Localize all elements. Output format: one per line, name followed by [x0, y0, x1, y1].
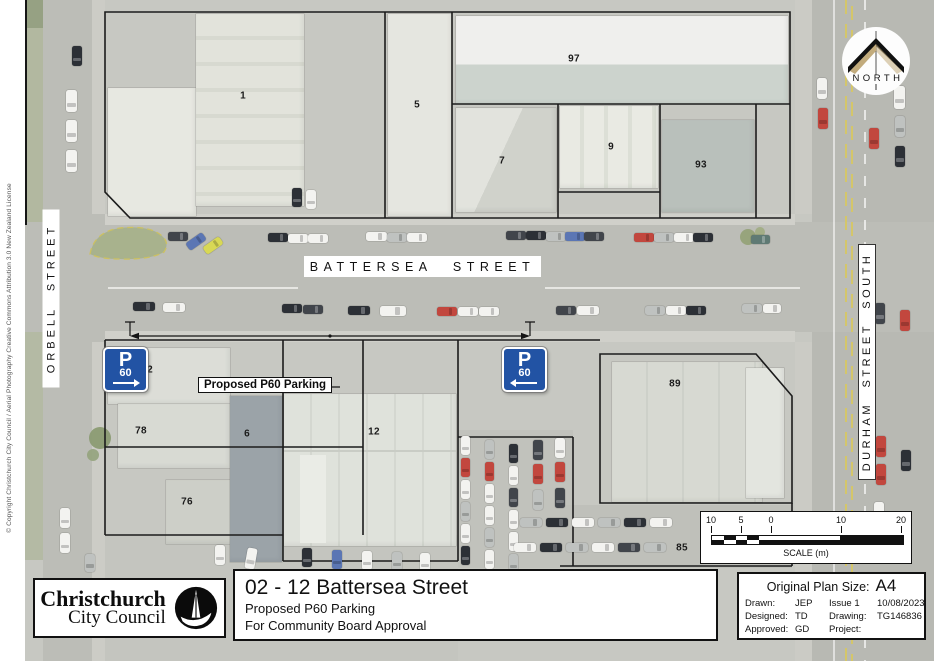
plan-canvas: 1 5 97 7 9 93 2 78 6 12 76 89 85 BATTERS…	[0, 0, 934, 661]
margin-strip: © Copyright Christchurch City Council / …	[0, 0, 25, 661]
street-label-battersea: BATTERSEA STREET	[304, 256, 541, 277]
p60-sign-minutes: 60	[105, 368, 146, 379]
parcel-label-93: 93	[695, 160, 707, 171]
north-label: NORTH	[852, 73, 903, 84]
scale-solid-segment	[840, 536, 903, 544]
scale-tick: 10	[836, 515, 846, 525]
arrow-right-icon	[113, 382, 138, 384]
p60-sign-p: P	[504, 352, 545, 368]
proposed-parking-annotation: Proposed P60 Parking	[198, 377, 332, 393]
scale-caption: SCALE (m)	[701, 548, 911, 558]
map-frame-line	[25, 0, 27, 225]
drawn-label: Drawn:	[745, 597, 795, 610]
dimension-arrow-left	[130, 333, 139, 339]
p60-sign-west: P 60	[103, 347, 148, 392]
scale-tick: 5	[738, 515, 743, 525]
tree	[87, 449, 99, 461]
parcel-label-89: 89	[669, 379, 681, 390]
plan-info-rows: Drawn: JEP Issue 1 10/08/2023 Designed: …	[745, 597, 918, 636]
scale-tick-mark	[901, 526, 902, 533]
designed-value: TD	[795, 610, 829, 623]
drawing-number: TG146836	[877, 610, 922, 623]
north-arrow: NORTH	[840, 25, 912, 102]
scale-bar-graphic	[711, 535, 904, 545]
scale-checker	[712, 536, 771, 544]
shrub	[740, 229, 756, 245]
scale-tick-mark	[771, 526, 772, 533]
issue-date: 10/08/2023	[877, 597, 925, 610]
plan-size-value: A4	[876, 576, 897, 596]
council-logo-text: Christchurch City Council	[40, 589, 166, 627]
scale-tick: 20	[896, 515, 906, 525]
info-row-approved: Approved: GD Project:	[745, 623, 918, 636]
plan-size-row: Original Plan Size: A4	[745, 576, 918, 596]
plan-info-box: Original Plan Size: A4 Drawn: JEP Issue …	[737, 572, 926, 640]
parcel-label-76: 76	[181, 497, 193, 508]
scale-mid-segment	[771, 536, 840, 544]
street-label-orbell: ORBELL STREET	[43, 210, 60, 388]
drawn-value: JEP	[795, 597, 829, 610]
copyright-notice: © Copyright Christchurch City Council / …	[6, 150, 18, 566]
scale-tick-mark	[711, 526, 712, 533]
plan-size-label: Original Plan Size:	[767, 580, 870, 594]
scale-tick: 10	[706, 515, 716, 525]
parcel-label-9: 9	[608, 142, 614, 153]
scale-tick: 0	[768, 515, 773, 525]
street-label-durham: DURHAM STREET SOUTH	[858, 244, 876, 480]
plan-approval-line: For Community Board Approval	[245, 617, 706, 634]
council-logo-box: Christchurch City Council	[33, 578, 226, 638]
plan-subtitle: Proposed P60 Parking	[245, 600, 706, 617]
parcel-outlines	[105, 12, 792, 566]
parcel-label-85: 85	[676, 543, 688, 554]
scale-tick-mark	[841, 526, 842, 533]
arrow-left-icon	[512, 382, 537, 384]
tree	[89, 427, 111, 449]
dimension-arrow-right	[521, 333, 530, 339]
p60-sign-minutes: 60	[504, 368, 545, 379]
dimension-midpoint	[328, 334, 331, 337]
drawing-title-box: 02 - 12 Battersea Street Proposed P60 Pa…	[233, 569, 718, 641]
parcel-label-5: 5	[414, 100, 420, 111]
plan-title: 02 - 12 Battersea Street	[245, 575, 706, 600]
approved-label: Approved:	[745, 623, 795, 636]
parcel-label-7: 7	[499, 156, 505, 167]
council-logo-icon	[173, 585, 219, 631]
approved-value: GD	[795, 623, 829, 636]
designed-label: Designed:	[745, 610, 795, 623]
north-arrow-icon: NORTH	[840, 25, 912, 97]
parcel-label-1: 1	[240, 91, 246, 102]
p60-sign-east: P 60	[502, 347, 547, 392]
parcel-label-6: 6	[244, 429, 250, 440]
shrub	[755, 227, 765, 237]
drawing-label: Drawing:	[829, 610, 877, 623]
parcel-label-97: 97	[568, 54, 580, 65]
scale-tick-mark	[741, 526, 742, 533]
parcel-label-78: 78	[135, 426, 147, 437]
traffic-island	[90, 227, 167, 259]
info-row-designed: Designed: TD Drawing: TG146836	[745, 610, 918, 623]
project-value	[877, 623, 918, 636]
project-label: Project:	[829, 623, 877, 636]
p60-sign-p: P	[105, 352, 146, 368]
scale-bar: 10 5 0 10 20 SCALE (m)	[700, 511, 912, 564]
issue-label: Issue 1	[829, 597, 877, 610]
council-name-line2: City Council	[40, 609, 166, 627]
parcel-label-12: 12	[368, 427, 380, 438]
council-name-line1: Christchurch	[40, 589, 166, 609]
info-row-drawn: Drawn: JEP Issue 1 10/08/2023	[745, 597, 918, 610]
